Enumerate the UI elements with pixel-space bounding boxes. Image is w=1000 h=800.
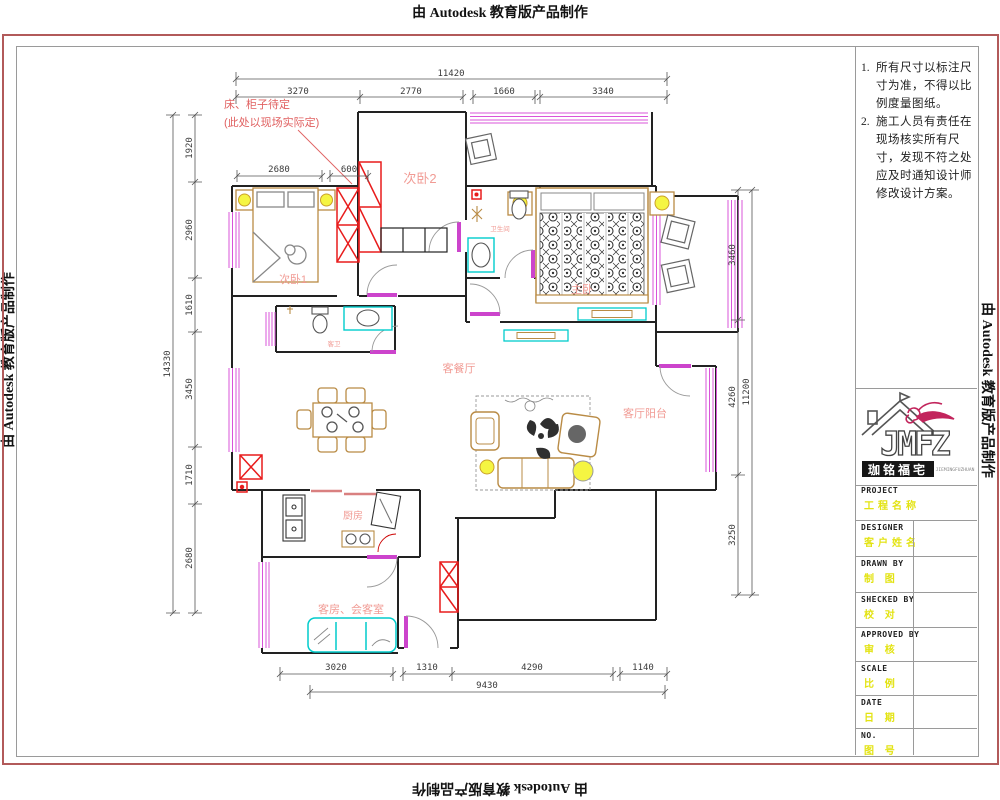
dim-left-4: 1710 bbox=[185, 464, 195, 486]
tv-benches bbox=[504, 308, 646, 341]
dining-set bbox=[297, 388, 386, 452]
dim-top-total: 11420 bbox=[437, 69, 464, 79]
room-label-living-dining: 客餐厅 bbox=[443, 361, 476, 375]
dim-inner-0: 2680 bbox=[268, 165, 290, 175]
dim-top-3: 3340 bbox=[592, 87, 614, 97]
corner-cabinet bbox=[237, 455, 262, 492]
kitchen-fixtures bbox=[283, 492, 401, 547]
wardrobe-bedroom1 bbox=[337, 188, 359, 262]
sofa bbox=[498, 458, 574, 488]
kitchen-red-arc bbox=[378, 534, 396, 552]
guest-bath-fixtures bbox=[287, 306, 392, 333]
room-label-bedroom1: 次卧1 bbox=[279, 272, 307, 286]
guest-sofa bbox=[308, 618, 396, 652]
door-leaf-master-bath bbox=[531, 250, 535, 278]
dimensions bbox=[166, 72, 759, 699]
dim-left-5: 2680 bbox=[185, 547, 195, 569]
dim-bottom-2: 4290 bbox=[521, 663, 543, 673]
door-leaf-guest-room bbox=[367, 555, 397, 559]
dim-top-1: 2770 bbox=[400, 87, 422, 97]
lamp-icon bbox=[573, 461, 593, 481]
water-heater bbox=[472, 190, 481, 199]
dim-right-1: 4260 bbox=[728, 386, 738, 408]
shoe-cabinet-entry bbox=[440, 562, 458, 612]
room-label-master: 主卧 bbox=[571, 283, 593, 296]
room-label-master-bath: 卫生间 bbox=[490, 224, 510, 233]
annotation-line2: (此处以现场实际定) bbox=[224, 115, 319, 129]
cushion bbox=[568, 425, 586, 443]
door-leaf-master bbox=[470, 312, 500, 316]
door-leaf-entry bbox=[404, 616, 408, 648]
room-label-guest-room: 客房、会客室 bbox=[318, 602, 384, 616]
door-leaf-guest-bath bbox=[370, 350, 396, 354]
door-leaf-bedroom1 bbox=[367, 293, 397, 297]
door-leaf-bedroom2 bbox=[457, 222, 461, 252]
floor-plan-svg: 次卧2 次卧1 主卧 卫生间 客卫 客餐厅 客厅阳台 厨房 客房、会客室 床、柜… bbox=[0, 0, 1000, 800]
dim-left-1: 2960 bbox=[185, 219, 195, 241]
dim-bottom-1: 1310 bbox=[416, 663, 438, 673]
room-label-living-balcony: 客厅阳台 bbox=[623, 406, 667, 420]
dim-left-3: 3450 bbox=[185, 378, 195, 400]
dim-left-0: 1920 bbox=[185, 137, 195, 159]
dim-bottom-3: 1140 bbox=[632, 663, 654, 673]
dim-right-0: 3460 bbox=[728, 244, 738, 266]
dim-bottom-0: 3020 bbox=[325, 663, 347, 673]
dim-top-2: 1660 bbox=[493, 87, 515, 97]
room-label-guest-bath: 客卫 bbox=[328, 339, 342, 348]
dim-top-0: 3270 bbox=[287, 87, 309, 97]
room-label-bedroom2: 次卧2 bbox=[403, 171, 436, 186]
lamp-icon bbox=[480, 460, 494, 474]
drawing-sheet: 由 Autodesk 教育版产品制作 由 Autodesk 教育版产品制作 由 … bbox=[0, 0, 1000, 800]
dim-right-2: 3250 bbox=[728, 524, 738, 546]
bed-bedroom1 bbox=[236, 188, 335, 282]
dim-inner-1: 600 bbox=[341, 165, 357, 175]
door-leaf-balcony bbox=[659, 364, 691, 368]
lamp-icon bbox=[655, 196, 669, 210]
dim-left-2: 1610 bbox=[185, 294, 195, 316]
room-label-kitchen: 厨房 bbox=[343, 509, 363, 522]
lamp-icon bbox=[239, 194, 251, 206]
kitchen-sliding-door bbox=[311, 491, 376, 494]
dim-left-total: 14330 bbox=[163, 350, 173, 377]
wardrobe-bedroom2 bbox=[359, 162, 381, 252]
coffee-table-plant bbox=[527, 418, 559, 459]
lamp-icon bbox=[321, 194, 333, 206]
dim-right-total: 11200 bbox=[742, 378, 752, 405]
dim-bottom-total: 9430 bbox=[476, 681, 498, 691]
living-set bbox=[471, 396, 601, 490]
